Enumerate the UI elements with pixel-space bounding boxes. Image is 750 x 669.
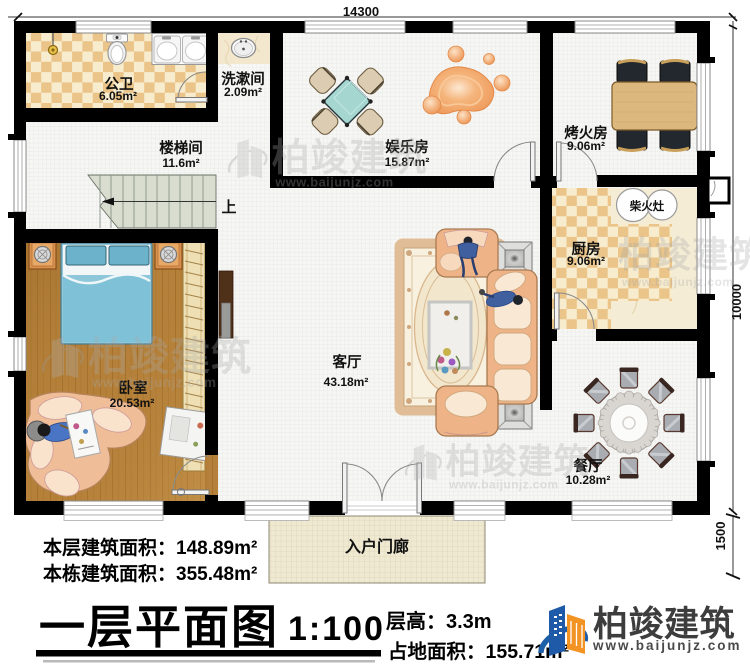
svg-text:1500: 1500: [713, 522, 728, 551]
svg-text:43.18m²: 43.18m²: [324, 375, 369, 389]
svg-text:层高：3.3m: 层高：3.3m: [386, 609, 492, 633]
svg-text:6.05m²: 6.05m²: [99, 89, 137, 103]
svg-text:本栋建筑面积：355.48m²: 本栋建筑面积：355.48m²: [43, 562, 257, 585]
svg-text:www.baijunjz.com: www.baijunjz.com: [448, 478, 559, 492]
svg-text:客厅: 客厅: [332, 353, 362, 371]
svg-text:柏竣建筑: 柏竣建筑: [445, 442, 589, 482]
svg-text:www.baijunjz.com: www.baijunjz.com: [621, 275, 734, 289]
svg-text:1:100: 1:100: [288, 610, 385, 648]
svg-text:www.baijunjz.com: www.baijunjz.com: [274, 175, 393, 190]
svg-text:www.baijunjz.com: www.baijunjz.com: [592, 638, 742, 653]
svg-text:本层建筑面积：148.89m²: 本层建筑面积：148.89m²: [43, 536, 257, 559]
svg-text:10000: 10000: [729, 284, 744, 320]
svg-text:柏竣建筑: 柏竣建筑: [88, 335, 252, 379]
svg-text:9.06m²: 9.06m²: [567, 254, 605, 268]
svg-text:一层平面图: 一层平面图: [39, 601, 279, 653]
svg-text:14300: 14300: [343, 4, 379, 19]
svg-text:9.06m²: 9.06m²: [567, 139, 605, 153]
svg-text:柏竣建筑: 柏竣建筑: [272, 138, 428, 180]
svg-text:柴火灶: 柴火灶: [629, 199, 665, 213]
svg-text:11.6m²: 11.6m²: [162, 156, 199, 170]
svg-text:2.09m²: 2.09m²: [224, 85, 262, 99]
svg-text:20.53m²: 20.53m²: [110, 396, 155, 410]
svg-text:柏竣建筑: 柏竣建筑: [618, 234, 750, 275]
svg-text:上: 上: [221, 199, 236, 216]
svg-text:楼梯间: 楼梯间: [159, 139, 203, 157]
svg-text:www.baijunjz.com: www.baijunjz.com: [91, 375, 217, 390]
svg-text:入户门廊: 入户门廊: [345, 537, 409, 556]
